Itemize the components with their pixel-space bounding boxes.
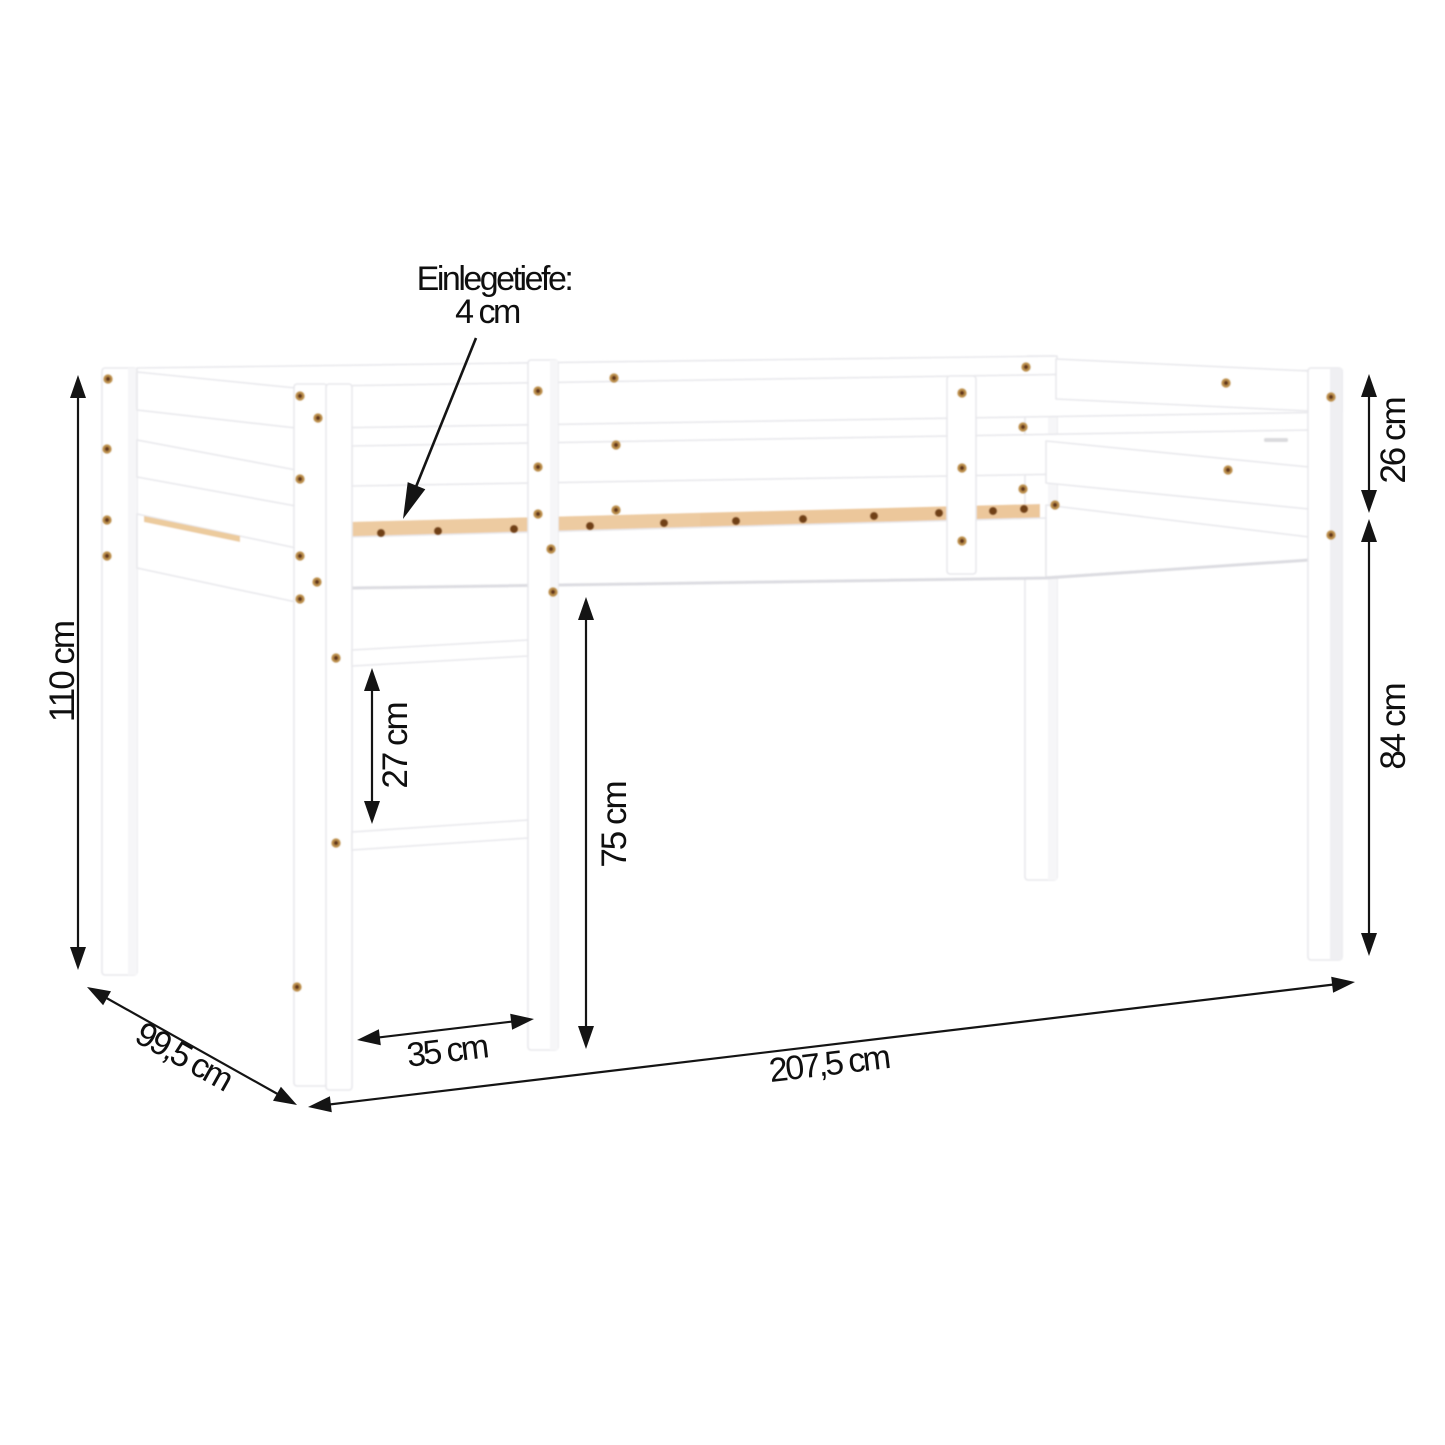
svg-text:26 cm: 26 cm — [1374, 398, 1413, 483]
svg-text:4 cm: 4 cm — [455, 293, 520, 331]
svg-text:75 cm: 75 cm — [595, 782, 634, 867]
svg-text:84 cm: 84 cm — [1374, 684, 1413, 769]
svg-text:110 cm: 110 cm — [43, 622, 82, 722]
svg-text:27 cm: 27 cm — [376, 703, 415, 788]
